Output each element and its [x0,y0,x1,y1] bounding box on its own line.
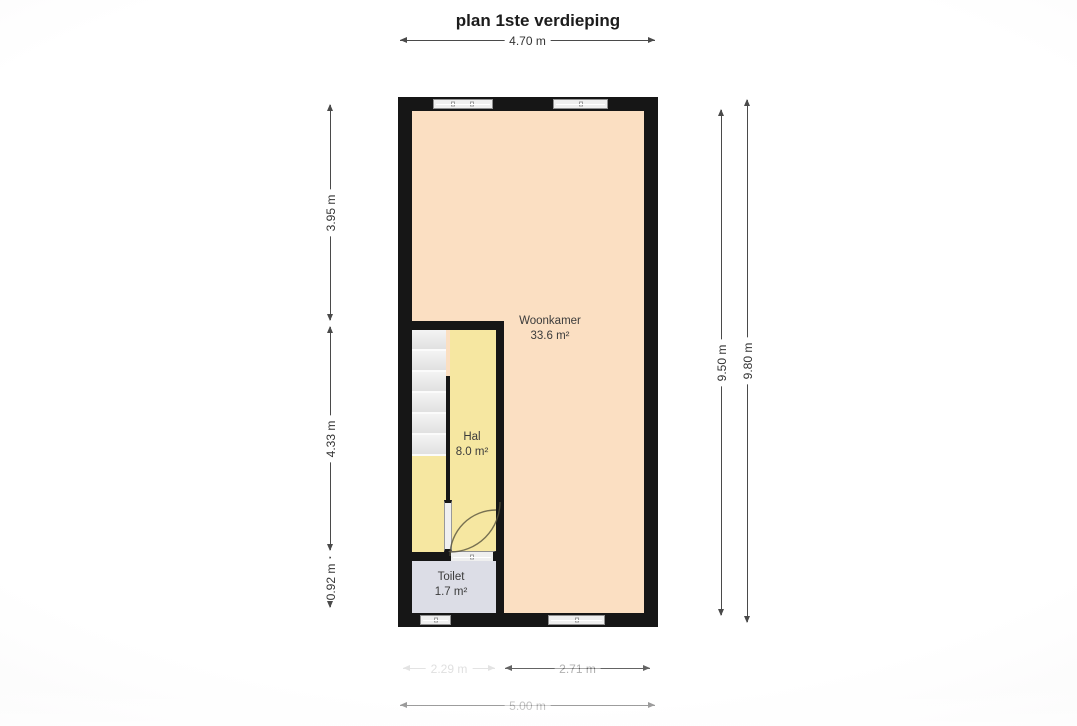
room-area: 33.6 m² [480,329,620,344]
window-mullion [451,102,455,107]
door-swing-arcs [440,495,510,565]
dimension-left-lower: 0.92 m [330,557,331,607]
dimension-bottom-left: 2.29 m [403,668,495,669]
dimension-bottom-right-label: 2.71 m [554,662,601,676]
dimension-left-upper-label: 3.95 m [323,189,339,236]
dimension-left-middle-label: 4.33 m [323,415,339,462]
dimension-bottom-right: 2.71 m [505,668,650,669]
page-title: plan 1ste verdieping [408,11,668,31]
dimension-right-outer-label: 9.80 m [740,338,756,385]
dimension-left-lower-label: 0.92 m [323,559,339,606]
dimension-right-outer: 9.80 m [747,100,748,622]
room-label-toilet: Toilet 1.7 m² [410,570,492,600]
room-name: Toilet [410,570,492,585]
dimension-left-middle: 4.33 m [330,327,331,550]
stair-tread [412,372,446,393]
window-bottom-left [420,615,451,625]
window-top-right [553,99,608,109]
window-mullion [579,102,583,107]
window-bottom-right [548,615,605,625]
dimension-bottom-left-label: 2.29 m [426,662,473,676]
window-mullion [575,618,579,623]
stair-tread [412,393,446,414]
dimension-top-width: 4.70 m [400,40,655,41]
stair-tread [412,351,446,372]
room-label-hal: Hal 8.0 m² [436,430,508,460]
dimension-left-upper: 3.95 m [330,105,331,320]
room-name: Woonkamer [480,314,620,329]
room-area: 1.7 m² [410,585,492,600]
window-mullion [470,102,474,107]
dimension-bottom-total: 5.00 m [400,705,655,706]
room-name: Hal [436,430,508,445]
wall-hal-right [496,321,504,613]
window-mullion [434,618,438,623]
room-area: 8.0 m² [436,445,508,460]
dimension-bottom-total-label: 5.00 m [504,699,551,713]
floor-plan-page: plan 1ste verdieping 4.70 m [0,0,1077,726]
dimension-right-inner-label: 9.50 m [714,339,730,386]
room-label-woonkamer: Woonkamer 33.6 m² [480,314,620,344]
stair-tread [412,330,446,351]
dimension-right-inner: 9.50 m [721,110,722,615]
dimension-top-width-label: 4.70 m [504,34,551,48]
window-top-left [433,99,493,109]
